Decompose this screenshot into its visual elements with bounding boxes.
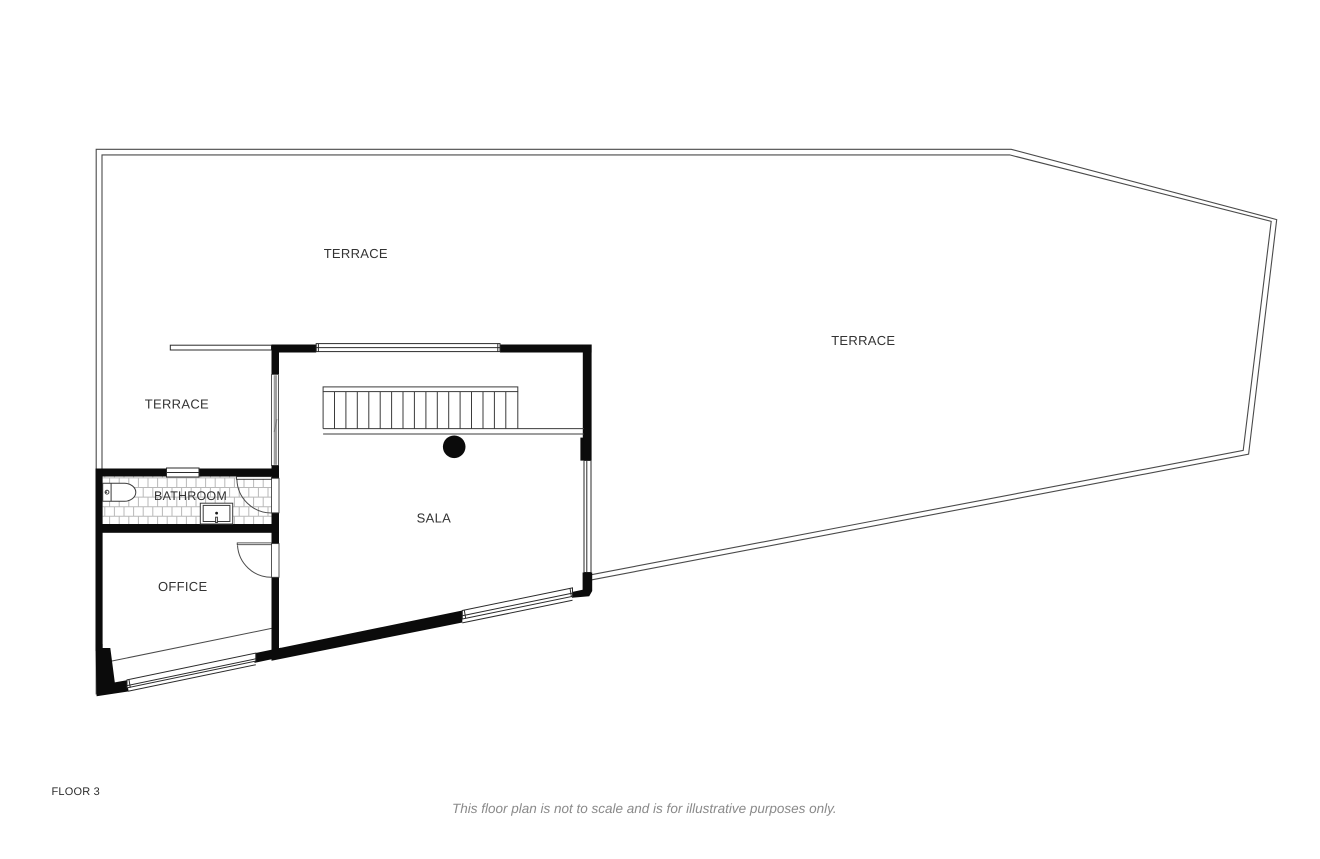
svg-text:TERRACE: TERRACE xyxy=(145,397,209,412)
svg-text:SALA: SALA xyxy=(417,511,451,526)
svg-text:TERRACE: TERRACE xyxy=(324,246,388,261)
svg-text:FLOOR 3: FLOOR 3 xyxy=(52,786,100,798)
svg-text:This floor plan is not to scal: This floor plan is not to scale and is f… xyxy=(452,801,837,816)
svg-text:TERRACE: TERRACE xyxy=(831,333,895,348)
svg-text:OFFICE: OFFICE xyxy=(158,579,207,594)
svg-text:BATHROOM: BATHROOM xyxy=(154,489,227,503)
